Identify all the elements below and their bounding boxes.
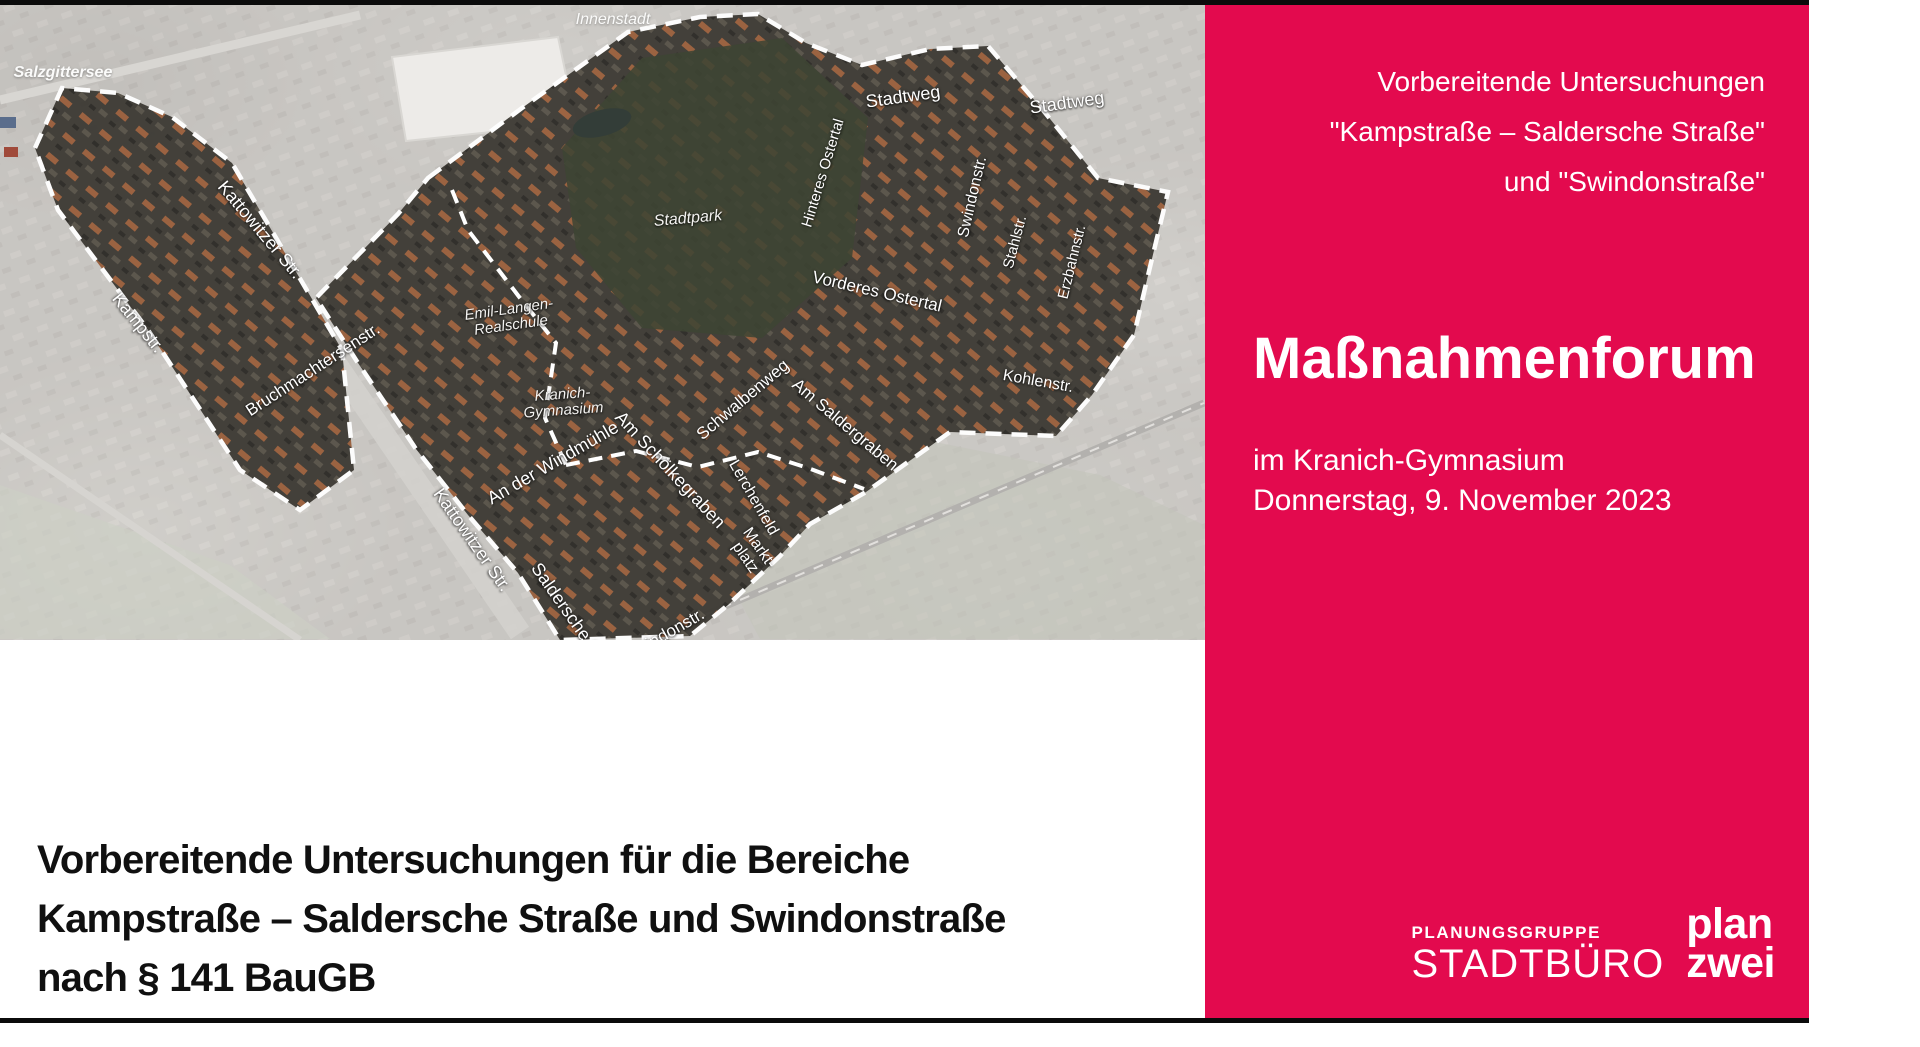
slide-caption: Vorbereitende Untersuchungen für die Ber…: [37, 831, 1006, 1008]
blue-speck: [0, 117, 16, 128]
panel-header-line3: und "Swindonstraße": [1330, 157, 1765, 207]
slide-bottom-rule: [0, 1018, 1809, 1023]
caption-line1: Vorbereitende Untersuchungen für die Ber…: [37, 831, 1006, 890]
map-label-innenstadt: Innenstadt: [576, 11, 651, 29]
venue-name: im Kranich-Gymnasium: [1253, 441, 1672, 481]
map-overlay: [0, 5, 1205, 640]
planzwei-logo-line2: zwei: [1686, 944, 1775, 984]
slide: Salzgittersee Innenstadt Stadtweg Stadtw…: [0, 0, 1920, 1047]
title-panel: Vorbereitende Untersuchungen "Kampstraße…: [1205, 5, 1809, 1018]
panel-header-line1: Vorbereitende Untersuchungen: [1330, 57, 1765, 107]
venue-block: im Kranich-Gymnasium Donnerstag, 9. Nove…: [1253, 441, 1672, 521]
logo-row: PLANUNGSGRUPPE STADTBÜRO plan zwei: [1411, 905, 1775, 984]
caption-line2: Kampstraße – Saldersche Straße und Swind…: [37, 890, 1006, 949]
stadtbuero-logo-bottom: STADTBÜRO: [1411, 944, 1664, 984]
aerial-map: Salzgittersee Innenstadt Stadtweg Stadtw…: [0, 5, 1205, 640]
map-label-kranich-gymnasium: Kranich- Gymnasium: [522, 384, 604, 422]
map-label-salzgittersee: Salzgittersee: [14, 64, 113, 82]
event-date: Donnerstag, 9. November 2023: [1253, 481, 1672, 521]
caption-line3: nach § 141 BauGB: [37, 949, 1006, 1008]
slide-title: Maßnahmenforum: [1253, 327, 1756, 391]
stadtbuero-logo-top: PLANUNGSGRUPPE: [1411, 924, 1664, 941]
stadtbuero-logo: PLANUNGSGRUPPE STADTBÜRO: [1411, 924, 1664, 984]
panel-header-line2: "Kampstraße – Saldersche Straße": [1330, 107, 1765, 157]
panel-header: Vorbereitende Untersuchungen "Kampstraße…: [1330, 57, 1765, 207]
planzwei-logo: plan zwei: [1686, 905, 1775, 984]
red-speck: [4, 147, 18, 157]
